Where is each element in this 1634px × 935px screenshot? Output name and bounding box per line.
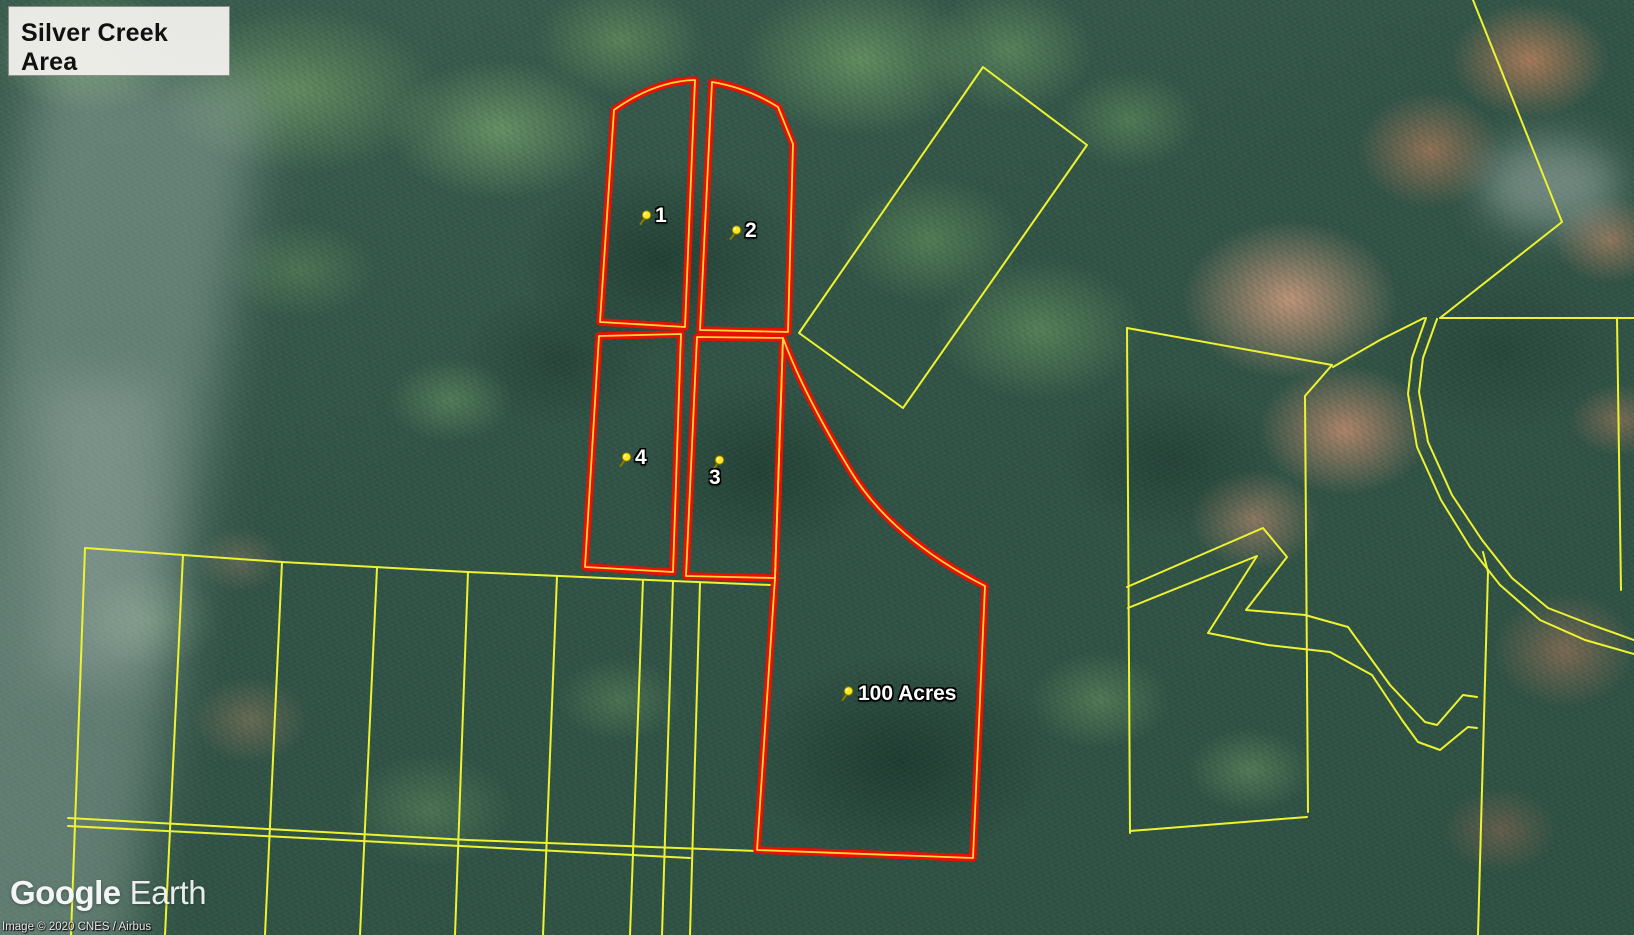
parcel-overlay (0, 0, 1634, 935)
parcel-2-boundary (700, 82, 793, 332)
pin-label[interactable]: 1 (655, 204, 667, 228)
topright-diagonal-boundary (1440, 0, 1562, 318)
parcel-3-boundary (686, 337, 783, 578)
pushpin-icon (637, 209, 655, 227)
parcel-3-boundary (686, 337, 783, 578)
pin-label[interactable]: 4 (635, 446, 647, 470)
road-edge-a-boundary (1419, 319, 1634, 640)
map-pin[interactable] (839, 685, 857, 703)
middle-parcel-top-boundary (1127, 328, 1332, 396)
logo-google-text: Google (10, 874, 121, 911)
strips-top-boundary (85, 548, 770, 585)
strip-divider-7-boundary (630, 580, 643, 935)
strip-divider-6-boundary (543, 576, 557, 935)
pin-label[interactable]: 2 (745, 219, 757, 243)
map-pin[interactable] (637, 209, 655, 227)
tilted-rectangle-boundary (799, 67, 1087, 408)
parcel-100-acres-boundary (757, 338, 985, 858)
strip-divider-5-boundary (455, 572, 468, 935)
parcel-1-boundary (600, 80, 695, 327)
parcel-100-acres-boundary (757, 338, 985, 858)
right-vertical-upper-boundary (1617, 319, 1621, 590)
zigzag-a-boundary (1127, 528, 1477, 725)
google-earth-viewport[interactable]: 1243100 Acres Silver Creek Area GoogleEa… (0, 0, 1634, 935)
google-earth-logo: GoogleEarth (10, 874, 206, 912)
map-title: Silver Creek Area (21, 19, 168, 76)
pushpin-icon (839, 685, 857, 703)
road-edge-b-boundary (1408, 318, 1634, 654)
strips-mid-lower-boundary (68, 826, 690, 858)
strip-divider-8-boundary (662, 581, 673, 935)
middle-parcel-right-boundary (1305, 396, 1308, 812)
imagery-copyright: Image © 2020 CNES / Airbus (2, 921, 151, 933)
strip-divider-4-boundary (360, 568, 377, 935)
strip-divider-3-boundary (265, 562, 282, 935)
pushpin-icon (617, 451, 635, 469)
middle-parcel-left-boundary (1127, 328, 1130, 833)
middle-parcel-bottom-boundary (1130, 817, 1307, 831)
map-pin[interactable] (617, 451, 635, 469)
pushpin-icon (727, 224, 745, 242)
pin-label[interactable]: 100 Acres (858, 682, 956, 706)
map-title-overlay: Silver Creek Area (8, 6, 230, 76)
logo-earth-text: Earth (130, 874, 206, 911)
junction-diagonal-boundary (1333, 318, 1424, 367)
strip-divider-9-boundary (690, 583, 700, 935)
strips-mid-upper-boundary (68, 818, 757, 851)
map-pin[interactable] (727, 224, 745, 242)
right-vertical-lower-boundary (1478, 552, 1488, 935)
pin-label[interactable]: 3 (709, 466, 721, 490)
